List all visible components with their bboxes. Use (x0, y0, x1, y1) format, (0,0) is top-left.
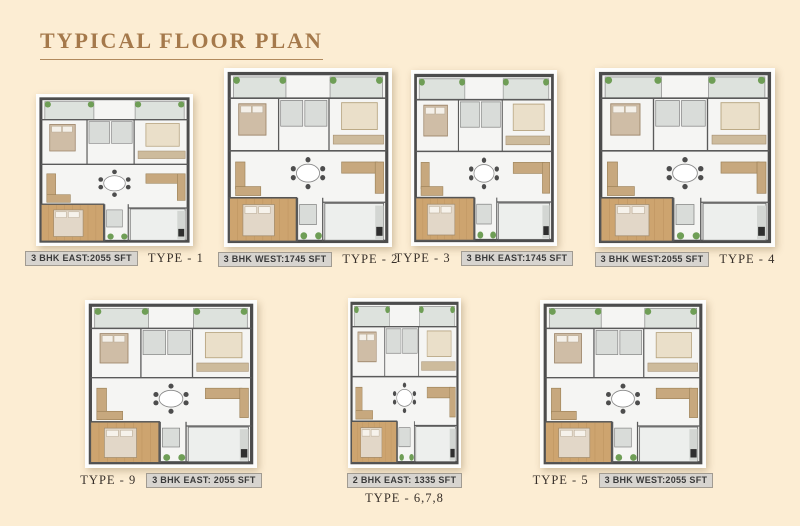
floor-plan-drawing (348, 298, 461, 468)
floor-plan-drawing (224, 68, 392, 247)
type-label: TYPE - 6,7,8 (365, 491, 444, 506)
area-label: 3 BHK EAST:2055 SFT (25, 251, 138, 266)
page-title: TYPICAL FLOOR PLAN (40, 28, 323, 60)
floor-plan-card-type-5: TYPE - 5 3 BHK WEST:2055 SFT (540, 300, 706, 488)
plan-label-row: 3 BHK WEST:1745 SFT TYPE - 2 (218, 252, 399, 267)
floor-plan-card-type-2: 3 BHK WEST:1745 SFT TYPE - 2 (224, 68, 392, 267)
plan-label-row: TYPE - 3 3 BHK EAST:1745 SFT (395, 251, 574, 266)
plan-label-row: TYPE - 9 3 BHK EAST: 2055 SFT (80, 473, 261, 488)
plan-label-row: 3 BHK WEST:2055 SFT TYPE - 4 (595, 252, 776, 267)
floor-plan-drawing (540, 300, 706, 468)
area-label: 3 BHK WEST:2055 SFT (595, 252, 710, 267)
area-label: 3 BHK EAST: 2055 SFT (146, 473, 262, 488)
floor-plan-card-type-3: TYPE - 3 3 BHK EAST:1745 SFT (411, 70, 557, 266)
plan-label-row: TYPE - 5 3 BHK WEST:2055 SFT (533, 473, 714, 488)
type-label: TYPE - 3 (395, 251, 451, 266)
type-label: TYPE - 4 (719, 252, 775, 267)
floor-plan-drawing (85, 300, 257, 468)
floor-plan-card-type-9: TYPE - 9 3 BHK EAST: 2055 SFT (85, 300, 257, 488)
plan-label-row: 2 BHK EAST: 1335 SFT TYPE - 6,7,8 (347, 473, 463, 506)
area-label: 3 BHK EAST:1745 SFT (461, 251, 574, 266)
floor-plan-drawing (595, 68, 775, 247)
area-label: 3 BHK WEST:1745 SFT (218, 252, 333, 267)
type-label: TYPE - 9 (80, 473, 136, 488)
floor-plan-image-type-1 (36, 94, 193, 246)
floor-plan-card-type-1: 3 BHK EAST:2055 SFT TYPE - 1 (36, 94, 193, 266)
type-label: TYPE - 5 (533, 473, 589, 488)
floor-plan-drawing (36, 94, 193, 246)
floor-plan-image-type-4 (595, 68, 775, 247)
floor-plan-card-type-4: 3 BHK WEST:2055 SFT TYPE - 4 (595, 68, 775, 267)
type-label: TYPE - 2 (342, 252, 398, 267)
area-label: 2 BHK EAST: 1335 SFT (347, 473, 463, 488)
type-label: TYPE - 1 (148, 251, 204, 266)
plan-label-row: 3 BHK EAST:2055 SFT TYPE - 1 (25, 251, 204, 266)
floor-plan-image-type-3 (411, 70, 557, 246)
floor-plan-drawing (411, 70, 557, 246)
floor-plan-image-type-9 (85, 300, 257, 468)
floor-plan-image-type-2 (224, 68, 392, 247)
floor-plan-image-type-678 (348, 298, 461, 468)
floor-plan-image-type-5 (540, 300, 706, 468)
area-label: 3 BHK WEST:2055 SFT (599, 473, 714, 488)
floor-plan-card-type-678: 2 BHK EAST: 1335 SFT TYPE - 6,7,8 (348, 298, 461, 506)
